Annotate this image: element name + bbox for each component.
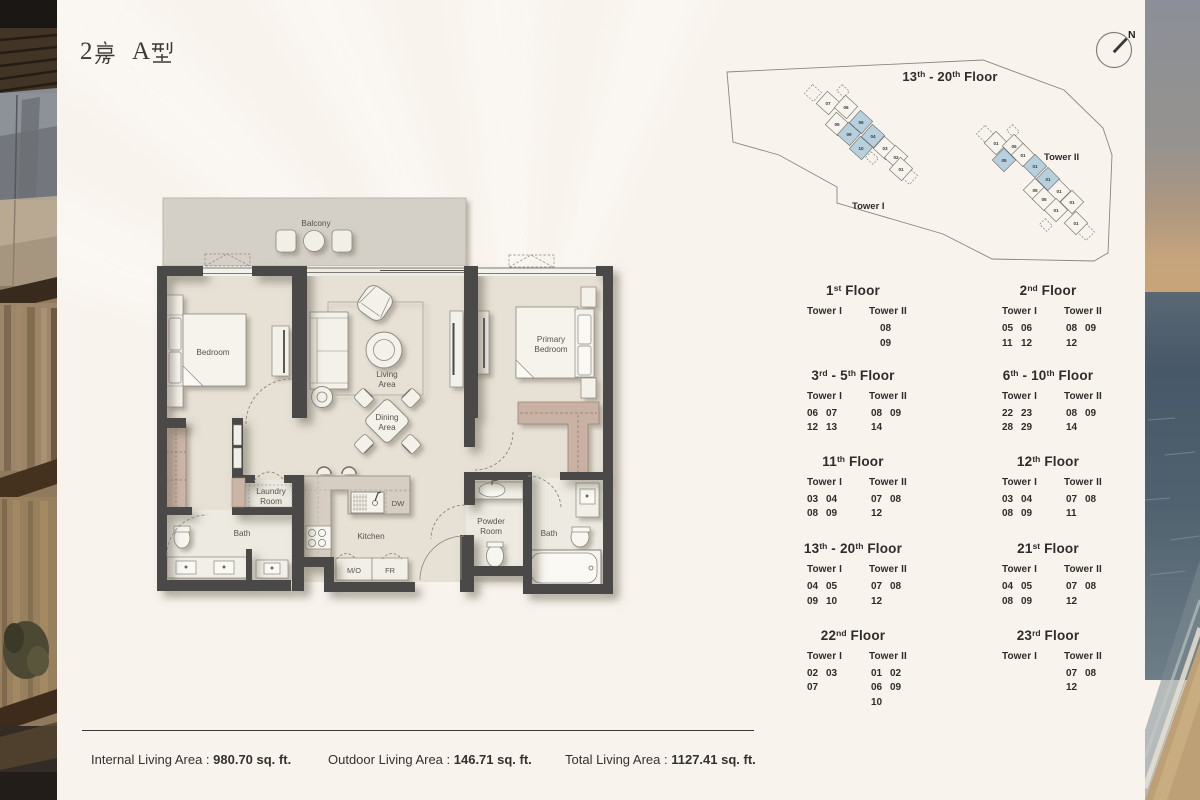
svg-text:05: 05 [1032,188,1038,193]
svg-text:Bedroom: Bedroom [534,345,567,354]
svg-text:05: 05 [1011,144,1017,149]
svg-text:01: 01 [1032,164,1038,169]
svg-text:01: 01 [1069,200,1075,205]
svg-text:05: 05 [1001,158,1007,163]
svg-text:FR: FR [385,566,395,575]
svg-text:Room: Room [480,527,502,536]
svg-text:01: 01 [1073,221,1079,226]
svg-text:Area: Area [378,423,396,432]
svg-text:Balcony: Balcony [301,219,331,228]
svg-text:Tower II: Tower II [1044,152,1079,163]
svg-text:Room: Room [260,497,282,506]
svg-text:Bedroom: Bedroom [196,348,229,357]
svg-text:02: 02 [893,155,899,160]
svg-text:Living: Living [376,370,398,379]
svg-text:Kitchen: Kitchen [357,532,385,541]
svg-text:Area: Area [378,380,396,389]
svg-text:01: 01 [898,167,904,172]
svg-text:06: 06 [843,105,849,110]
svg-text:06: 06 [858,120,864,125]
svg-text:Bath: Bath [541,529,558,538]
svg-text:01: 01 [1020,153,1026,158]
svg-text:Powder: Powder [477,517,505,526]
svg-text:Tower I: Tower I [852,201,885,212]
svg-text:M/O: M/O [347,566,361,575]
svg-text:Laundry: Laundry [256,487,286,496]
svg-text:01: 01 [1045,177,1051,182]
svg-text:05: 05 [834,122,840,127]
svg-text:01: 01 [1056,189,1062,194]
svg-text:Dining: Dining [375,413,399,422]
svg-text:01: 01 [1053,208,1059,213]
svg-text:10: 10 [858,146,864,151]
svg-text:N: N [1128,29,1136,41]
svg-text:Bath: Bath [234,529,251,538]
svg-text:01: 01 [993,141,999,146]
svg-text:09: 09 [846,132,852,137]
svg-text:03: 03 [882,146,888,151]
svg-text:Primary: Primary [537,335,566,344]
svg-text:05: 05 [1041,197,1047,202]
svg-text:DW: DW [392,499,405,508]
svg-text:07: 07 [825,101,831,106]
svg-text:04: 04 [870,134,876,139]
